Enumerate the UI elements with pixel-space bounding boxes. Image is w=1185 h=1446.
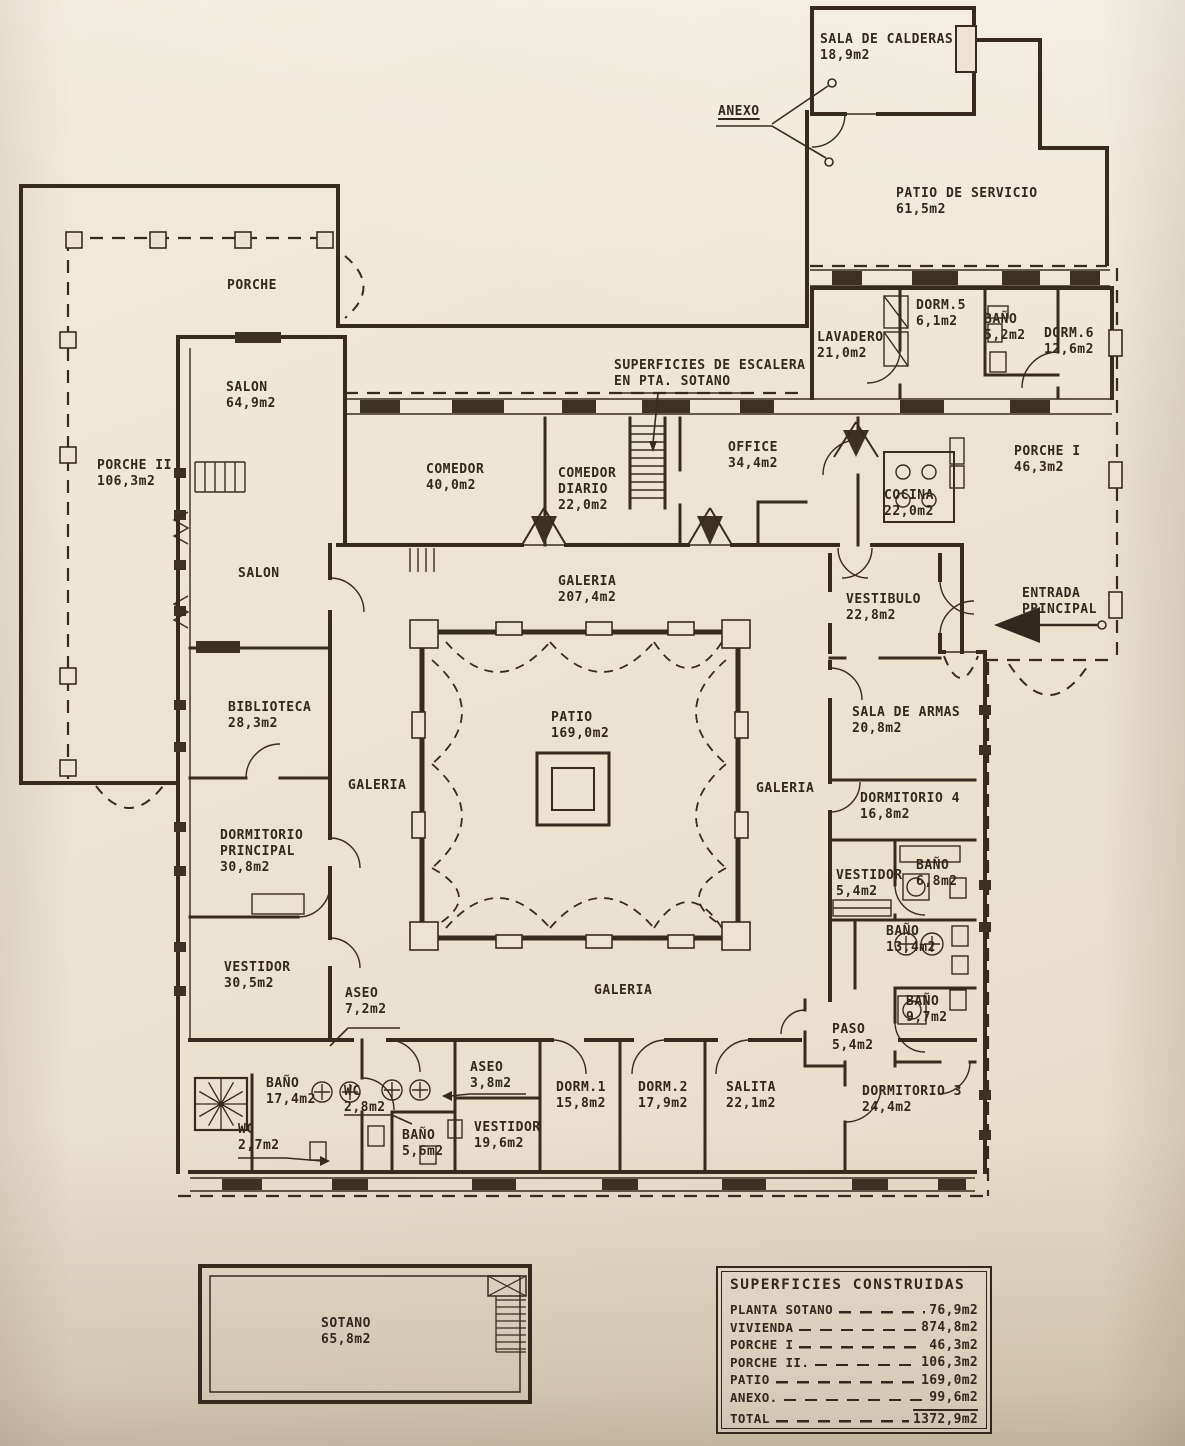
legend-row: PATIO 169,0m2: [730, 1369, 978, 1387]
legend-row-value: 169,0m2: [921, 1374, 978, 1387]
room-label-vestidor-5-4: VESTIDOR 5,4m2: [836, 868, 903, 900]
room-label-wc-2-7: WC 2,7m2: [238, 1122, 280, 1154]
legend-row: PORCHE I 46,3m2: [730, 1334, 978, 1352]
room-label-porche: PORCHE: [227, 278, 277, 294]
legend-row-value: 76,9m2: [929, 1304, 978, 1317]
room-label-wc-2-8: WC 2,8m2: [344, 1084, 386, 1116]
room-label-bano-9-7: BAÑO 9,7m2: [906, 994, 948, 1026]
legend-row-dashes: [839, 1311, 925, 1314]
patio-walls: [422, 632, 738, 938]
blueprint-page: SALA DE CALDERAS 18,9m2 PATIO DE SERVICI…: [0, 0, 1185, 1446]
room-label-bano-5-6: BAÑO 5,6m2: [402, 1128, 444, 1160]
legend-row-dashes: [776, 1381, 917, 1384]
room-label-galeria-norte: GALERIA 207,4m2: [558, 574, 616, 606]
legend-row: ANEXO. 99,6m2: [730, 1387, 978, 1405]
legend-row-value: 874,8m2: [921, 1321, 978, 1334]
legend-row-label: ANEXO.: [730, 1392, 778, 1405]
room-label-dormitorio4: DORMITORIO 4 16,8m2: [860, 791, 960, 823]
legend-row-label: TOTAL: [730, 1413, 770, 1426]
room-label-galeria-este: GALERIA: [756, 781, 814, 797]
legend-row: VIVIENDA 874,8m2: [730, 1317, 978, 1335]
patio-scallop-arcs: [432, 642, 726, 928]
room-label-dorm5: DORM.5 6,1m2: [916, 298, 966, 330]
legend-row-label: PORCHE I: [730, 1339, 793, 1352]
fountain: [537, 753, 609, 825]
room-label-aseo-7-2: ASEO 7,2m2: [345, 986, 387, 1018]
annotation-anexo: ANEXO: [718, 104, 760, 120]
room-label-porche1: PORCHE I 46,3m2: [1014, 444, 1081, 476]
room-label-paso: PASO 5,4m2: [832, 1022, 874, 1054]
room-label-dormitorio-principal: DORMITORIO PRINCIPAL 30,8m2: [220, 828, 303, 876]
room-label-dorm6: DORM.6 12,6m2: [1044, 326, 1094, 358]
leader-arrowheads: [320, 441, 657, 1166]
room-label-vestibulo: VESTIBULO 22,8m2: [846, 592, 921, 624]
room-label-sala-calderas: SALA DE CALDERAS 18,9m2: [820, 32, 953, 64]
room-label-salita: SALITA 22,1m2: [726, 1080, 776, 1112]
room-label-biblioteca: BIBLIOTECA 28,3m2: [228, 700, 311, 732]
room-label-aseo-3-8: ASEO 3,8m2: [470, 1060, 512, 1092]
room-label-porche2: PORCHE II 106,3m2: [97, 458, 172, 490]
room-label-galeria-sur: GALERIA: [594, 983, 652, 999]
room-label-sotano: SOTANO 65,8m2: [321, 1316, 371, 1348]
legend-box: SUPERFICIES CONSTRUIDAS PLANTA SOTANO 76…: [716, 1266, 992, 1434]
porch-steps: [195, 462, 434, 572]
room-label-salon2: SALON: [238, 566, 280, 582]
room-label-vestidor-19-6: VESTIDOR 19,6m2: [474, 1120, 541, 1152]
legend-row-label: PORCHE II.: [730, 1357, 809, 1370]
room-label-office: OFFICE 34,4m2: [728, 440, 778, 472]
legend-row-label: PATIO: [730, 1374, 770, 1387]
room-label-dorm2: DORM.2 17,9m2: [638, 1080, 688, 1112]
window-blocks: [174, 271, 1100, 1190]
room-label-dormitorio3: DORMITORIO 3 24,4m2: [862, 1084, 962, 1116]
room-label-bano-6-8: BAÑO 6,8m2: [916, 858, 958, 890]
chimney-notch: [956, 26, 976, 72]
room-label-dorm1: DORM.1 15,8m2: [556, 1080, 606, 1112]
room-label-bano-5-2: BAÑO 5,2m2: [984, 312, 1026, 344]
room-label-patio: PATIO 169,0m2: [551, 710, 609, 742]
legend-row-value: 106,3m2: [921, 1356, 978, 1369]
stairs-to-basement: [630, 426, 665, 498]
patio-columns: [410, 620, 750, 950]
room-label-bano-17-4: BAÑO 17,4m2: [266, 1076, 316, 1108]
room-label-vestidor-30-5: VESTIDOR 30,5m2: [224, 960, 291, 992]
legend-row-value: 1372,9m2: [913, 1409, 978, 1426]
legend-row-value: 99,6m2: [929, 1391, 978, 1404]
basement-stairs: [496, 1296, 526, 1352]
room-label-comedor-diario: COMEDOR DIARIO 22,0m2: [558, 466, 616, 514]
room-label-cocina: COCINA 22,0m2: [884, 488, 934, 520]
room-label-patio-servicio: PATIO DE SERVICIO 61,5m2: [896, 186, 1038, 218]
legend-row-label: PLANTA SOTANO: [730, 1304, 833, 1317]
room-label-salon1: SALON 64,9m2: [226, 380, 276, 412]
legend-row-value: 46,3m2: [929, 1339, 978, 1352]
room-label-bano-13-4: BAÑO 13,4m2: [886, 924, 936, 956]
legend-row-dashes: [784, 1398, 926, 1401]
legend-row: PLANTA SOTANO 76,9m2: [730, 1299, 978, 1317]
legend-inner-frame: SUPERFICIES CONSTRUIDAS PLANTA SOTANO 76…: [721, 1271, 987, 1429]
legend-row: PORCHE II. 106,3m2: [730, 1352, 978, 1370]
room-label-lavadero: LAVADERO 21,0m2: [817, 330, 884, 362]
room-label-comedor: COMEDOR 40,0m2: [426, 462, 484, 494]
legend-row-dashes: [776, 1420, 909, 1423]
legend-row-dashes: [815, 1363, 917, 1366]
legend-row-dashes: [799, 1328, 917, 1331]
room-label-galeria-oeste: GALERIA: [348, 778, 406, 794]
annotation-entrada: ENTRADA PRINCIPAL: [1022, 586, 1097, 618]
legend-row-total: TOTAL 1372,9m2: [730, 1408, 978, 1426]
legend-title: SUPERFICIES CONSTRUIDAS: [730, 1278, 978, 1294]
room-label-sala-armas: SALA DE ARMAS 20,8m2: [852, 705, 960, 737]
annotation-escalera: SUPERFICIES DE ESCALERA EN PTA. SOTANO: [614, 358, 806, 390]
legend-row-dashes: [799, 1346, 925, 1349]
legend-row-label: VIVIENDA: [730, 1322, 793, 1335]
